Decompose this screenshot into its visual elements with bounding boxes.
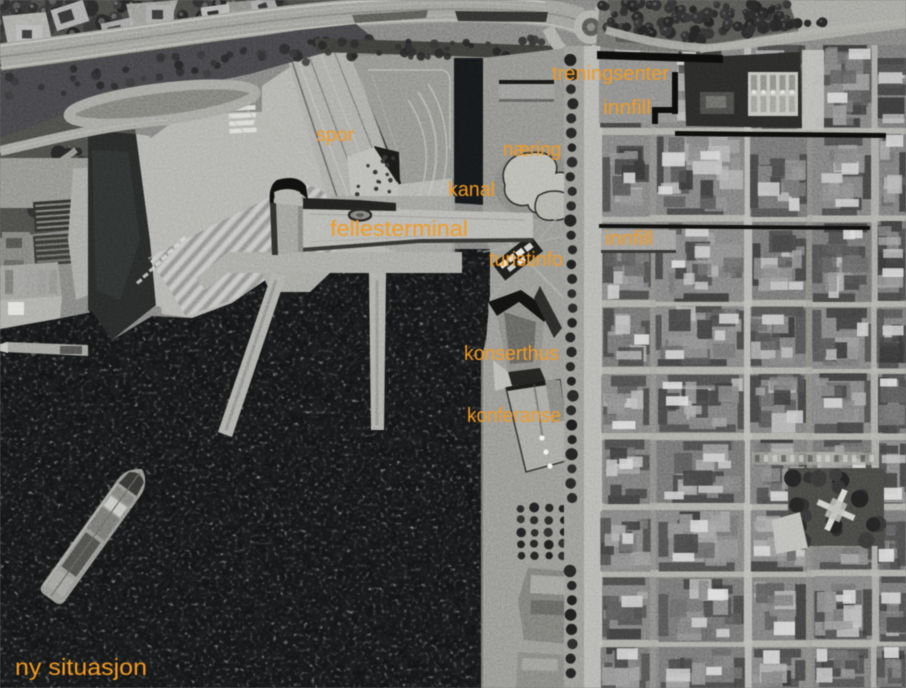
svg-text:næring: næring [503,139,561,161]
svg-text:spor: spor [316,125,355,146]
svg-text:treningsenter: treningsenter [552,63,669,85]
svg-text:fellesterminal: fellesterminal [330,216,468,241]
svg-text:kanal: kanal [448,179,495,201]
svg-text:innfill: innfill [605,228,653,250]
svg-text:turistinfo: turistinfo [489,249,563,271]
svg-text:ny situasjon: ny situasjon [15,654,147,680]
svg-text:konserthus: konserthus [464,343,559,365]
svg-text:innfill: innfill [603,97,651,119]
svg-text:konferanse: konferanse [467,405,561,427]
